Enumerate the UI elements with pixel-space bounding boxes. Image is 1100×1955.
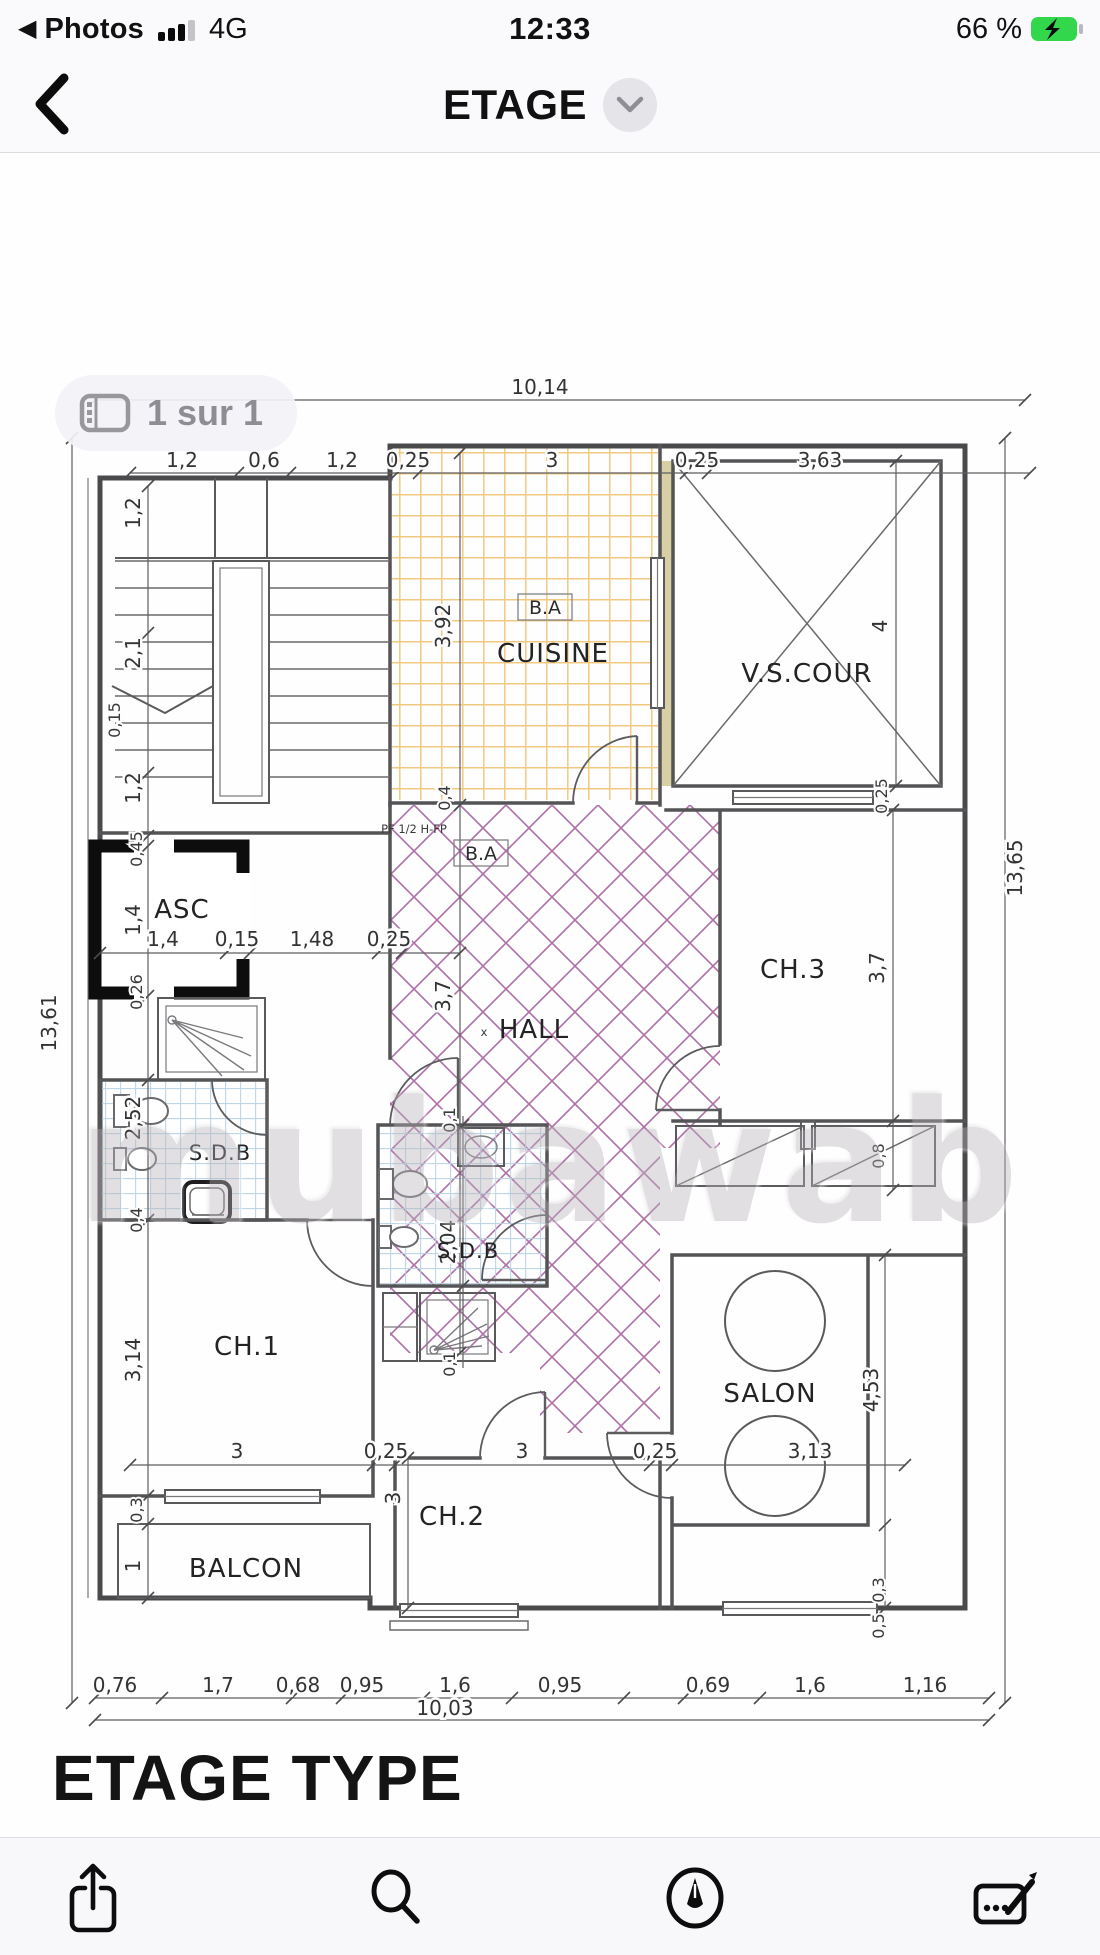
page-indicator-label: 1 sur 1	[147, 392, 263, 434]
svg-text:3,7: 3,7	[865, 952, 889, 984]
svg-text:1,2: 1,2	[166, 448, 198, 472]
page-title: ETAGE	[443, 81, 587, 129]
chevron-down-icon	[615, 94, 645, 116]
svg-text:0,76: 0,76	[93, 1673, 138, 1697]
svg-text:0,26: 0,26	[127, 974, 146, 1010]
shower-left	[158, 998, 265, 1080]
svg-text:0,3: 0,3	[127, 1497, 146, 1522]
svg-text:0,45: 0,45	[127, 831, 146, 867]
plan-title: ETAGE TYPE	[52, 1741, 463, 1815]
svg-text:1,4: 1,4	[147, 927, 179, 951]
svg-text:1,2: 1,2	[121, 772, 145, 804]
svg-text:2,1: 2,1	[121, 637, 145, 669]
svg-text:1,6: 1,6	[439, 1673, 471, 1697]
search-button[interactable]	[354, 1856, 438, 1940]
room-label-ch1: CH.1	[214, 1332, 280, 1362]
svg-text:3,14: 3,14	[121, 1338, 145, 1383]
svg-text:0,8: 0,8	[869, 1143, 888, 1168]
dim-total-top: 10,14	[511, 375, 568, 399]
svg-text:0,95: 0,95	[538, 1673, 583, 1697]
clock: 12:33	[0, 11, 1100, 47]
svg-text:0,1: 0,1	[440, 1107, 459, 1132]
svg-text:0,25: 0,25	[633, 1439, 678, 1463]
svg-text:0,68: 0,68	[276, 1673, 321, 1697]
floor-plan-image[interactable]: 10,14 1,2 0,6 1,2 0,25 3 0,25 3,63 13,61…	[0, 368, 1100, 1758]
svg-text:0,5: 0,5	[869, 1613, 888, 1638]
share-icon	[62, 1860, 124, 1936]
svg-text:3,7: 3,7	[431, 980, 455, 1012]
title-menu-button[interactable]	[603, 78, 657, 132]
note-ba-hall: B.A	[465, 843, 497, 865]
dim-left-total: 13,61	[37, 994, 61, 1051]
svg-text:3: 3	[381, 1492, 405, 1505]
signature-form-icon	[968, 1864, 1042, 1932]
room-label-vs-cour: V.S.COUR	[741, 659, 872, 689]
svg-text:1: 1	[121, 1560, 145, 1573]
search-icon	[363, 1865, 429, 1931]
svg-text:0,95: 0,95	[340, 1673, 385, 1697]
battery-charging-icon	[1030, 16, 1084, 42]
svg-text:3: 3	[231, 1439, 244, 1463]
svg-text:0,25: 0,25	[364, 1439, 409, 1463]
vs-cour	[673, 461, 941, 804]
svg-text:3: 3	[516, 1439, 529, 1463]
note-ba-cuisine: B.A	[529, 597, 561, 619]
room-label-ch3: CH.3	[760, 955, 826, 985]
room-label-asc: ASC	[154, 895, 209, 925]
dim-right-total: 13,65	[1003, 839, 1027, 896]
svg-text:0,1: 0,1	[440, 1351, 459, 1376]
svg-text:2,52: 2,52	[121, 1096, 145, 1141]
nav-bar: ETAGE	[0, 58, 1100, 153]
room-label-hall: HALL	[499, 1015, 569, 1045]
status-bar: ◀ Photos 4G 12:33 66 %	[0, 0, 1100, 58]
svg-text:1,7: 1,7	[202, 1673, 234, 1697]
svg-text:0,25: 0,25	[675, 448, 720, 472]
note-pf: PF 1/2 H-FP	[381, 822, 447, 836]
room-label-ch2: CH.2	[419, 1502, 485, 1532]
svg-text:0,4: 0,4	[127, 1207, 146, 1232]
share-button[interactable]	[51, 1856, 135, 1940]
svg-text:1,6: 1,6	[794, 1673, 826, 1697]
svg-text:0,6: 0,6	[248, 448, 280, 472]
svg-text:1,4: 1,4	[121, 904, 145, 936]
svg-text:0,4: 0,4	[435, 785, 454, 810]
svg-text:0,69: 0,69	[686, 1673, 731, 1697]
markup-button[interactable]	[653, 1856, 737, 1940]
bottom-toolbar	[0, 1837, 1100, 1955]
svg-text:3,63: 3,63	[798, 448, 843, 472]
svg-text:1,48: 1,48	[290, 927, 335, 951]
svg-text:1,2: 1,2	[121, 497, 145, 529]
room-label-salon: SALON	[723, 1379, 816, 1409]
svg-text:0,25: 0,25	[386, 448, 431, 472]
dim-total-bottom: 10,03	[416, 1696, 473, 1720]
battery-percent: 66 %	[956, 13, 1022, 46]
svg-text:3,13: 3,13	[788, 1439, 833, 1463]
svg-text:0,25: 0,25	[872, 778, 891, 814]
signature-button[interactable]	[963, 1856, 1047, 1940]
svg-text:1,16: 1,16	[903, 1673, 948, 1697]
room-label-balcon: BALCON	[189, 1554, 303, 1584]
svg-text:4: 4	[868, 620, 892, 633]
svg-text:0,3: 0,3	[869, 1577, 888, 1602]
markup-pen-icon	[661, 1864, 729, 1932]
pages-icon	[79, 393, 131, 433]
room-label-cuisine: CUISINE	[497, 639, 609, 669]
page-indicator-badge[interactable]: 1 sur 1	[55, 375, 297, 451]
svg-text:3: 3	[546, 448, 559, 472]
svg-text:0,25: 0,25	[367, 927, 412, 951]
photo-viewer[interactable]: 1 sur 1	[0, 153, 1100, 1838]
hall-marker: x	[481, 1025, 488, 1039]
room-label-sdb-center: S.D.B	[437, 1239, 499, 1263]
svg-text:1,2: 1,2	[326, 448, 358, 472]
svg-text:4,53: 4,53	[859, 1368, 883, 1413]
svg-text:0,15: 0,15	[215, 927, 260, 951]
room-label-sdb-left: S.D.B	[189, 1141, 251, 1165]
svg-text:3,92: 3,92	[431, 604, 455, 649]
svg-text:0,15: 0,15	[105, 702, 124, 738]
